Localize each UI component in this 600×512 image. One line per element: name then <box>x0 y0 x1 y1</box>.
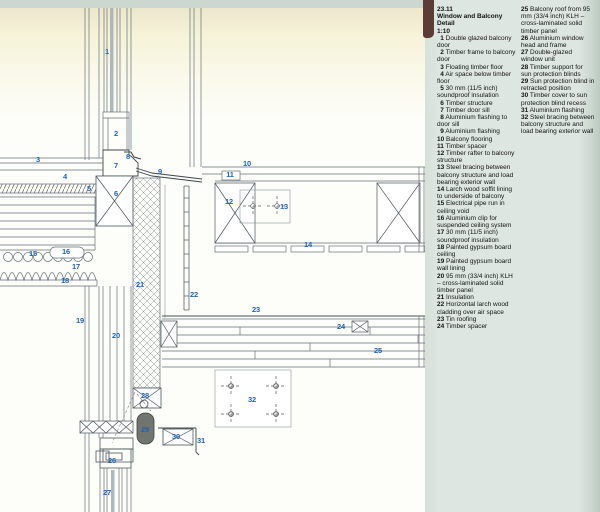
callout-12: 12 <box>225 197 233 206</box>
balcony-roof <box>161 316 425 367</box>
callout-27: 27 <box>103 488 111 497</box>
legend-item-1: 1 Double glazed balcony door <box>437 35 516 49</box>
legend-item-21: 21 Insulation <box>437 294 516 301</box>
legend-item-26: 26 Aluminium window head and frame <box>521 35 595 49</box>
callout-21: 21 <box>136 280 144 289</box>
legend-item-31: 31 Aluminium flashing <box>521 107 595 114</box>
balcony-floor <box>202 167 425 252</box>
legend-item-29: 29 Sun protection blind in retracted pos… <box>521 78 595 92</box>
callout-6: 6 <box>114 189 118 198</box>
callout-2: 2 <box>114 129 118 138</box>
legend-item-7: 7 Timber door sill <box>437 107 516 114</box>
legend-item-18: 18 Painted gypsum board ceiling <box>437 244 516 258</box>
legend-column-2: 25 Balcony roof from 95 mm (33/4 inch) K… <box>521 6 595 330</box>
callout-26: 26 <box>108 456 116 465</box>
legend-item-22: 22 Horizontal larch wood cladding over a… <box>437 301 516 315</box>
callout-22: 22 <box>190 290 198 299</box>
legend-item-11: 11 Timber spacer <box>437 143 516 150</box>
legend-item-23: 23 Tin roofing <box>437 316 516 323</box>
callout-28: 28 <box>141 391 149 400</box>
callout-19: 19 <box>76 316 84 325</box>
soffit-boards <box>215 246 425 252</box>
callout-16: 16 <box>62 247 70 256</box>
callout-31: 31 <box>197 436 205 445</box>
legend-item-5: 5 30 mm (11/5 inch) soundproof insulatio… <box>437 85 516 99</box>
legend-item-28: 28 Timber support for sun protection bli… <box>521 64 595 78</box>
book-page: { "header": { "code": "23.11", "title": … <box>0 0 600 512</box>
detail-title: Window and Balcony Detail <box>437 13 516 27</box>
legend-item-9: 9 Aluminium flashing <box>437 128 516 135</box>
callout-17: 17 <box>72 262 80 271</box>
callout-1: 1 <box>105 47 109 56</box>
legend-item-24: 24 Timber spacer <box>437 323 516 330</box>
callout-4: 4 <box>63 172 67 181</box>
callout-25: 25 <box>374 346 382 355</box>
callout-29: 29 <box>141 425 149 434</box>
legend-item-20: 20 95 mm (33/4 inch) KLH – cross-laminat… <box>437 273 516 295</box>
legend-item-17: 17 30 mm (11/5 inch) soundproof insulati… <box>437 229 516 243</box>
lower-wall <box>85 286 131 512</box>
callout-20: 20 <box>112 331 120 340</box>
interior-floor <box>0 158 103 250</box>
legend-item-12: 12 Timber rafter to balcony structure <box>437 150 516 164</box>
callout-14: 14 <box>304 240 312 249</box>
callout-23: 23 <box>252 305 260 314</box>
legend-item-10: 10 Balcony flooring <box>437 136 516 143</box>
detail-drawing: 1234567891011121314151617181920212223242… <box>0 0 425 512</box>
legend-item-6: 6 Timber structure <box>437 100 516 107</box>
detail-scale: 1:10 <box>437 28 516 35</box>
callout-32: 32 <box>248 395 256 404</box>
suspended-ceiling <box>0 247 97 286</box>
timber-structure-block <box>96 176 133 226</box>
legend-item-25: 25 Balcony roof from 95 mm (33/4 inch) K… <box>521 6 595 35</box>
callout-15: 15 <box>29 249 37 258</box>
legend-item-8: 8 Aluminium flashing to door sill <box>437 114 516 128</box>
legend-item-3: 3 Floating timber floor <box>437 64 516 71</box>
legend-column-1: 23.11 Window and Balcony Detail 1:10 1 D… <box>437 6 516 330</box>
legend-item-27: 27 Double-glazed window unit <box>521 49 595 63</box>
callout-13: 13 <box>280 202 288 211</box>
legend-item-30: 30 Timber cover to sun protection blind … <box>521 92 595 106</box>
callout-10: 10 <box>243 159 251 168</box>
callout-24: 24 <box>337 322 345 331</box>
upper-wall-and-door <box>85 8 201 167</box>
callout-18: 18 <box>61 276 69 285</box>
page-edge-mark <box>423 0 434 38</box>
legend-item-13: 13 Steel bracing between balcony structu… <box>437 164 516 186</box>
legend-panel: 23.11 Window and Balcony Detail 1:10 1 D… <box>425 0 600 512</box>
callout-11: 11 <box>226 170 234 179</box>
legend-item-15: 15 Electrical pipe run in ceiling void <box>437 200 516 214</box>
callout-7: 7 <box>114 161 118 170</box>
window-lintel <box>80 421 133 433</box>
detail-code: 23.11 <box>437 6 516 13</box>
detail-heading: 23.11 Window and Balcony Detail 1:10 <box>437 6 516 35</box>
timber-cladding <box>184 186 189 310</box>
callout-9: 9 <box>158 167 162 176</box>
callout-30: 30 <box>172 432 180 441</box>
legend-item-16: 16 Aluminium clip for suspended ceiling … <box>437 215 516 229</box>
legend-item-14: 14 Larch wood soffit lining to underside… <box>437 186 516 200</box>
callout-5: 5 <box>87 184 91 193</box>
legend-item-19: 19 Painted gypsum board wall lining <box>437 258 516 272</box>
legend-item-4: 4 Air space below timber floor <box>437 71 516 85</box>
legend-item-32: 32 Steel bracing between balcony structu… <box>521 114 595 136</box>
window-unit <box>96 392 135 512</box>
callout-8: 8 <box>126 152 130 161</box>
callout-3: 3 <box>36 155 40 164</box>
legend-item-2: 2 Timber frame to balcony door <box>437 49 516 63</box>
